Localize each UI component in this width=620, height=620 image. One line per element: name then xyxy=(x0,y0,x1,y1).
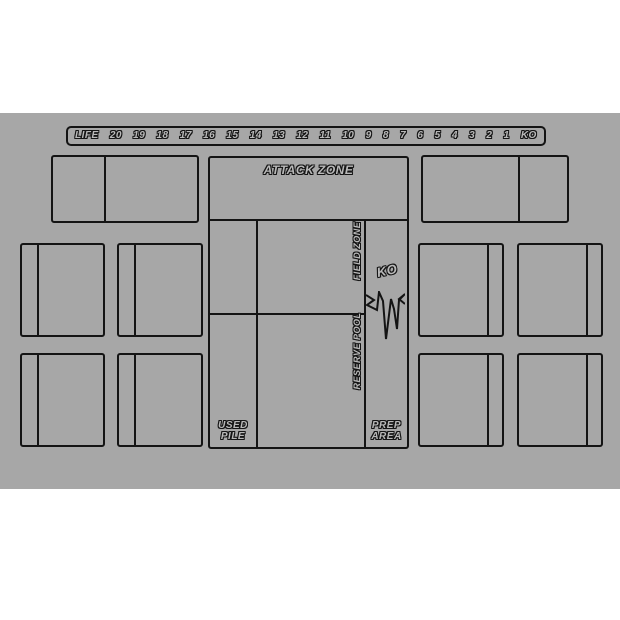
slot-divider xyxy=(518,157,520,221)
card-slot-right-4[interactable] xyxy=(517,353,603,447)
life-value-3[interactable]: 3 xyxy=(469,131,475,141)
slot-divider xyxy=(37,355,39,445)
slot-divider xyxy=(586,355,588,445)
life-value-18[interactable]: 18 xyxy=(156,131,168,141)
card-slot-right-3[interactable] xyxy=(418,353,504,447)
life-value-2[interactable]: 2 xyxy=(486,131,492,141)
prep-area-line1: PREP xyxy=(366,420,407,431)
used-pile-line2: PILE xyxy=(210,431,256,442)
card-slot-top-right[interactable] xyxy=(421,155,569,223)
life-value-8[interactable]: 8 xyxy=(383,131,389,141)
used-pile-line1: USED xyxy=(210,420,256,431)
life-value-6[interactable]: 6 xyxy=(417,131,423,141)
central-playfield: ATTACK ZONE USED PILE FIELD ZONE RESERVE… xyxy=(208,156,409,449)
card-slot-right-1[interactable] xyxy=(418,243,504,337)
reserve-pool-label: RESERVE POOL xyxy=(352,312,362,389)
card-slot-right-2[interactable] xyxy=(517,243,603,337)
card-slot-top-left[interactable] xyxy=(51,155,199,223)
life-value-16[interactable]: 16 xyxy=(203,131,215,141)
life-value-5[interactable]: 5 xyxy=(435,131,441,141)
slot-divider xyxy=(104,157,106,221)
slot-divider xyxy=(487,245,489,335)
life-value-ko[interactable]: KO xyxy=(521,131,537,141)
life-value-10[interactable]: 10 xyxy=(342,131,354,141)
slot-divider xyxy=(134,355,136,445)
explosion-burst-icon xyxy=(366,291,405,343)
life-value-11[interactable]: 11 xyxy=(320,131,331,141)
life-value-14[interactable]: 14 xyxy=(250,131,262,141)
used-pile-zone[interactable]: USED PILE xyxy=(210,221,258,447)
life-track-label: LIFE xyxy=(75,131,99,141)
card-slot-left-2[interactable] xyxy=(117,243,203,337)
life-value-19[interactable]: 19 xyxy=(133,131,145,141)
prep-area-line2: AREA xyxy=(366,431,407,442)
life-value-7[interactable]: 7 xyxy=(400,131,406,141)
life-value-13[interactable]: 13 xyxy=(273,131,285,141)
life-value-20[interactable]: 20 xyxy=(110,131,122,141)
life-value-1[interactable]: 1 xyxy=(504,131,510,141)
life-value-15[interactable]: 15 xyxy=(226,131,238,141)
attack-zone-label: ATTACK ZONE xyxy=(264,163,354,177)
attack-zone[interactable]: ATTACK ZONE xyxy=(210,158,407,221)
life-track[interactable]: LIFE 20 19 18 17 16 15 14 13 12 11 10 9 … xyxy=(66,126,546,146)
life-value-4[interactable]: 4 xyxy=(452,131,458,141)
ko-zone-label: KO xyxy=(375,261,398,280)
card-slot-left-1[interactable] xyxy=(20,243,105,337)
life-value-9[interactable]: 9 xyxy=(366,131,372,141)
life-value-12[interactable]: 12 xyxy=(296,131,308,141)
card-slot-left-3[interactable] xyxy=(20,353,105,447)
slot-divider xyxy=(487,355,489,445)
slot-divider xyxy=(37,245,39,335)
slot-divider xyxy=(134,245,136,335)
prep-area-label: PREP AREA xyxy=(366,420,407,442)
field-zone-label: FIELD ZONE xyxy=(352,222,362,281)
life-value-17[interactable]: 17 xyxy=(180,131,192,141)
playmat-image: LIFE 20 19 18 17 16 15 14 13 12 11 10 9 … xyxy=(0,0,620,620)
slot-divider xyxy=(586,245,588,335)
used-pile-label: USED PILE xyxy=(210,420,256,442)
card-slot-left-4[interactable] xyxy=(117,353,203,447)
ko-prep-column[interactable]: KO PREP AREA xyxy=(364,221,407,447)
